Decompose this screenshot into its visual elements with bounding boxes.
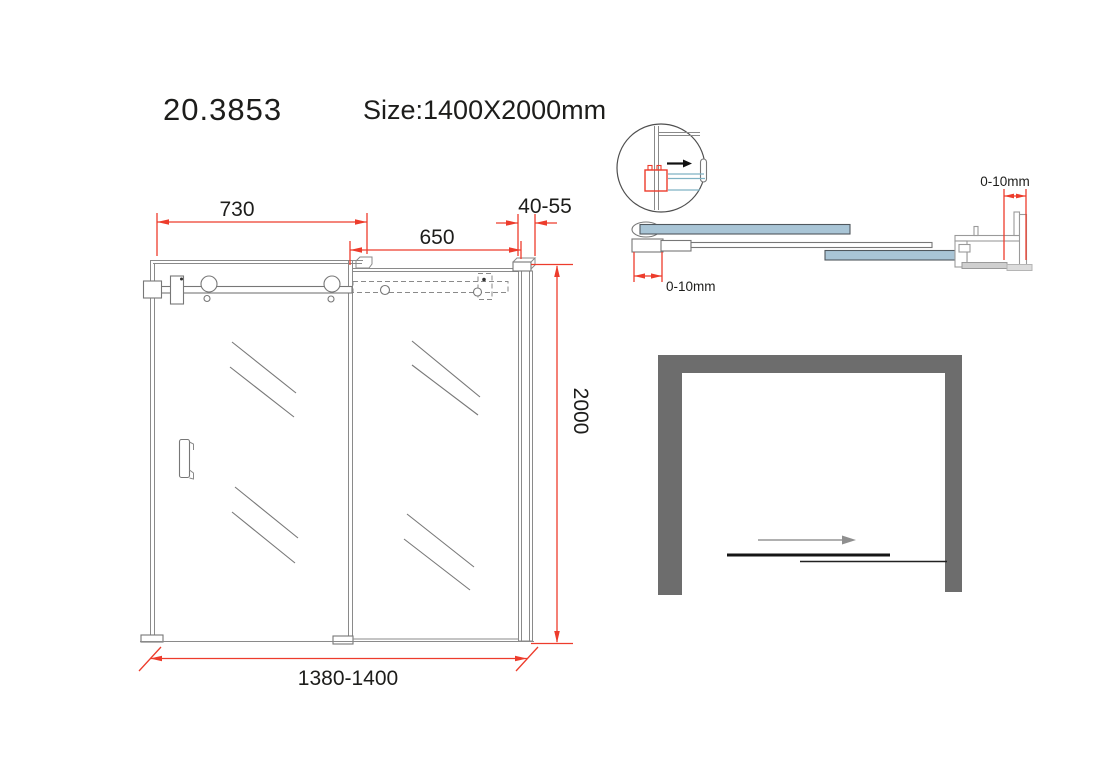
dim-40-55-label: 40-55 <box>518 195 572 218</box>
dim-2000: 2000 <box>531 265 592 644</box>
hidden-screw <box>474 288 482 296</box>
front-elevation-view: 730 650 40-55 2000 <box>139 195 592 690</box>
dim-wall-adjust-label: 0-10mm <box>980 174 1030 189</box>
room-plan-view <box>658 355 962 595</box>
dim-1380-1400: 1380-1400 <box>139 647 538 690</box>
door-foot-center <box>333 636 353 644</box>
dim-door-adjust: 0-10mm <box>634 252 716 294</box>
wall-left <box>658 355 682 595</box>
roller-wheel <box>324 276 340 292</box>
profile-top-cap <box>513 262 531 271</box>
hidden-track-dashed <box>353 282 508 293</box>
model-number: 20.3853 <box>163 92 282 127</box>
glass-reflection-lines <box>230 341 480 590</box>
sliding-glass-section <box>640 225 850 235</box>
sliding-track-assembly <box>144 274 509 305</box>
wall-profile-section <box>955 212 1032 271</box>
technical-drawing: 20.3853 Size:1400X2000mm <box>0 0 1100 778</box>
door-foot-left <box>141 635 163 642</box>
track-end-cap <box>144 281 162 298</box>
dim-2000-label: 2000 <box>569 388 592 435</box>
roller-wheel <box>201 276 217 292</box>
hidden-screw <box>381 286 390 295</box>
track-end-box <box>632 239 663 252</box>
dim-overall-width-label: 1380-1400 <box>298 667 398 690</box>
dim-650: 650 <box>350 226 521 265</box>
dim-730-label: 730 <box>219 198 254 221</box>
fixed-glass-panel <box>352 269 519 640</box>
wall-top <box>658 355 962 373</box>
drawing-sheet: 20.3853 Size:1400X2000mm <box>0 0 1100 778</box>
dim-door-adjust-label: 0-10mm <box>666 279 716 294</box>
detail-circle-view <box>617 124 707 212</box>
wall-right <box>945 355 962 592</box>
hidden-screw-dot <box>482 278 486 282</box>
size-label: Size:1400X2000mm <box>363 95 606 125</box>
dim-730: 730 <box>157 198 367 256</box>
fixed-glass-section <box>825 251 967 261</box>
wall-profile <box>513 258 535 641</box>
door-handle <box>180 440 194 480</box>
bracket-screw-dot <box>180 278 183 281</box>
track-adjust-box <box>661 241 691 252</box>
anti-jump-screw <box>204 296 210 302</box>
track-rail-section <box>691 243 932 248</box>
panel-junction-tab <box>356 257 372 268</box>
sliding-door-panel <box>141 257 372 644</box>
anti-jump-screw <box>328 296 334 302</box>
dim-40-55: 40-55 <box>496 195 572 256</box>
dim-650-label: 650 <box>419 226 454 249</box>
